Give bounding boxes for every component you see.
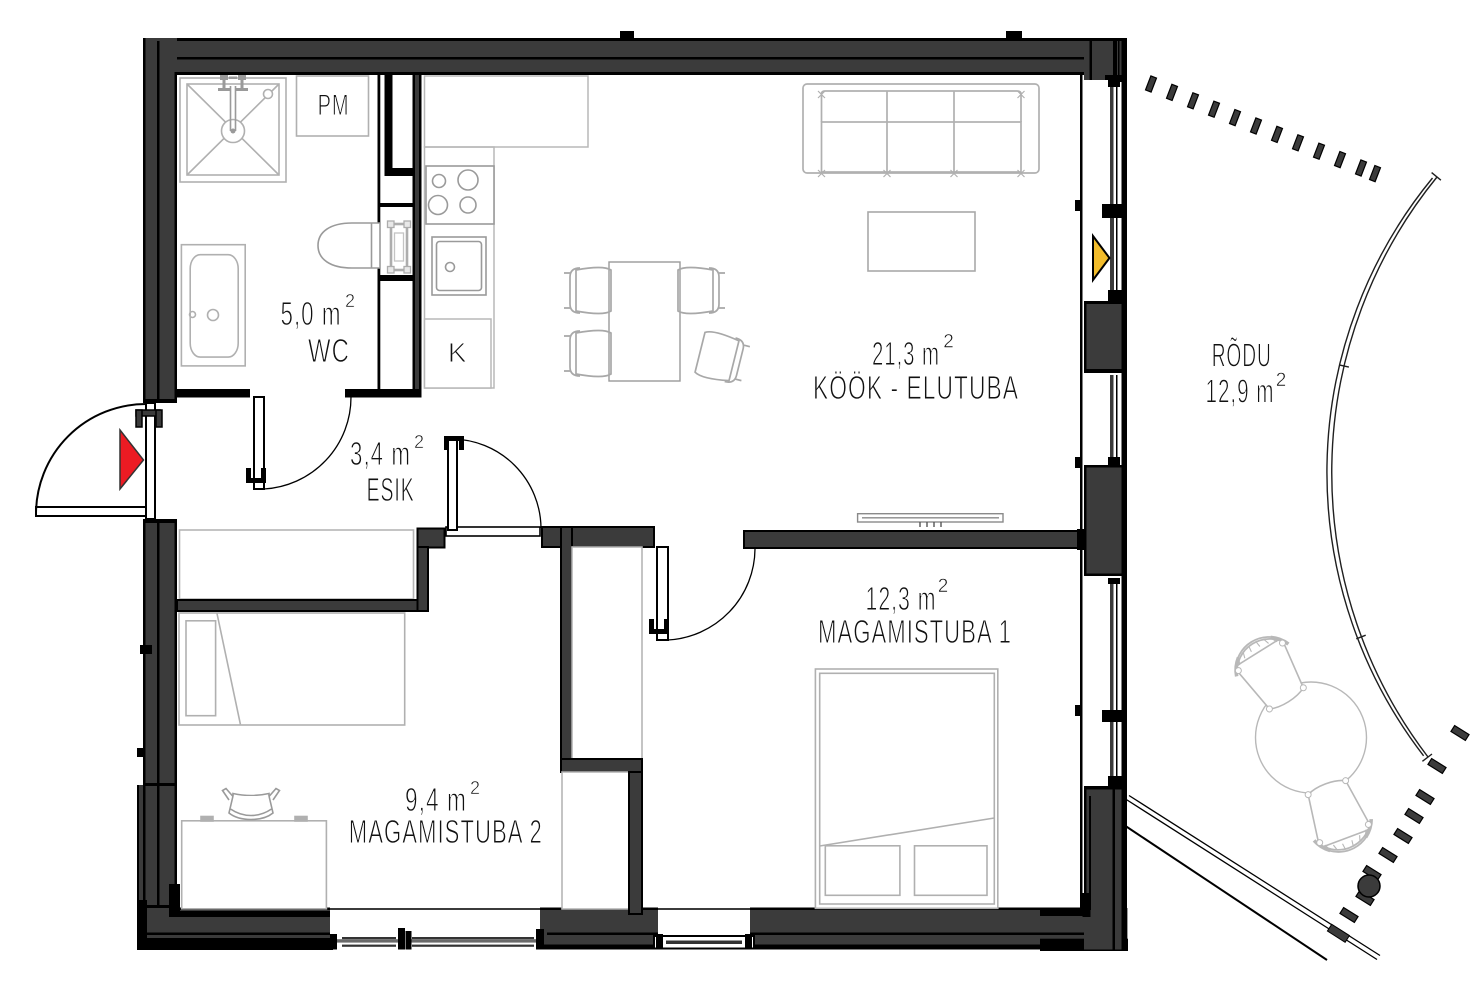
svg-text:KÖÖK - ELUTUBA: KÖÖK - ELUTUBA: [813, 369, 1019, 406]
svg-text:5,0 m: 5,0 m: [281, 295, 342, 332]
svg-text:12,9 m: 12,9 m: [1206, 373, 1275, 410]
svg-text:RÕDU: RÕDU: [1212, 337, 1272, 374]
svg-text:2: 2: [414, 432, 424, 452]
svg-text:MAGAMISTUBA 1: MAGAMISTUBA 1: [818, 613, 1012, 650]
svg-text:2: 2: [938, 576, 949, 597]
svg-text:3,4 m: 3,4 m: [350, 435, 411, 472]
svg-text:2: 2: [943, 332, 954, 353]
svg-text:PM: PM: [318, 89, 350, 122]
svg-text:WC: WC: [308, 332, 350, 369]
svg-text:2: 2: [470, 778, 480, 798]
svg-text:12,3 m: 12,3 m: [866, 580, 937, 617]
svg-text:ESIK: ESIK: [367, 471, 415, 508]
svg-text:MAGAMISTUBA 2: MAGAMISTUBA 2: [349, 813, 543, 850]
svg-text:2: 2: [345, 291, 355, 311]
svg-text:K: K: [448, 337, 468, 368]
svg-text:21,3 m: 21,3 m: [872, 335, 940, 372]
svg-text:2: 2: [1276, 370, 1287, 391]
